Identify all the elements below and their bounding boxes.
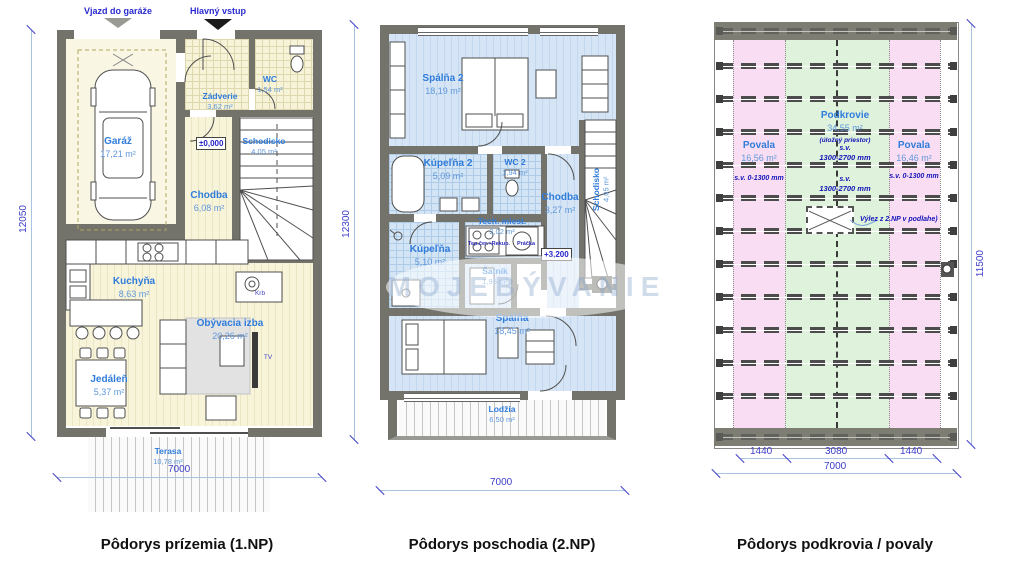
watermark: MOJEBÝVANIE [386,256,668,318]
room-name: Lodžia [489,404,516,414]
dim-height-ground: 12050 [18,205,29,233]
room-label-povala-left: Povala 16,56 m² [741,140,777,164]
room-area: 16,56 m² [741,153,777,164]
room-label-wc2: WC 2 1,94 m² [502,157,527,177]
room-label-tech: Tech. miest. 3,02 m² [478,216,527,236]
room-label-chodba2: Chodba 3,27 m² [541,192,578,216]
room-name: Tech. miest. [478,216,527,226]
tv-label: TV [264,354,272,361]
caption-second: Pôdorys poschodia (2.NP) [409,536,596,553]
room-label-garaz: Garáž 17,21 m² [100,136,136,160]
room-area: 18,45 m² [494,326,530,337]
room-label-schodisko2: Schodisko 4,05 m² [591,168,611,211]
room-name: Garáž [104,136,132,147]
caption-attic: Pôdorys podkrovia / povaly [737,536,933,553]
dim-seg3: 1440 [900,446,922,457]
room-label-podkrovie: Podkrovie 34,55 m² [821,110,869,134]
room-name: Obývacia izba [197,318,264,329]
room-area: 1,94 m² [502,168,527,177]
main-entry-arrow-icon [204,19,232,30]
room-area: 5,37 m² [90,387,127,398]
room-area: 8,63 m² [113,289,155,300]
room-name: Zádverie [203,91,238,101]
dim-height-second: 12300 [341,210,352,238]
room-name: Kúpeľňa 2 [424,158,473,169]
room-name: Jedáleň [90,374,127,385]
entry-label-main: Hlavný vstup [190,6,246,16]
dim-seg1: 1440 [750,446,772,457]
room-area: 4,05 m² [602,168,611,211]
room-label-wc: WC 1,54 m² [257,74,282,94]
room-label-lodzia: Lodžia 6,50 m² [489,404,516,424]
note-vylez: Výlez z 2.NP v podlahe) [860,216,938,223]
room-label-spalna2: Spálňa 2 18,19 m² [422,73,463,97]
floorplan-sheet: Vjazd do garáže Hlavný vstup Garáž 17,21… [0,0,1011,570]
room-area: 17,21 m² [100,149,136,160]
room-label-terasa: Terasa 10,78 m² [153,446,183,466]
room-area: 6,08 m² [190,203,227,214]
room-area: 3,02 m² [478,227,527,236]
room-area: 5,09 m² [424,171,473,182]
room-name: Kúpeľňa [410,244,451,255]
room-area: 6,50 m² [489,415,516,424]
room-name: Terasa [155,446,182,456]
dim-width-ground: 7000 [168,464,190,475]
caption-ground: Pôdorys prízemia (1.NP) [101,536,274,553]
room-label-povala-right: Povala 16,46 m² [896,140,932,164]
note-sv-center2-range: 1300-2700 mm [819,184,870,193]
room-name: Spálňa 2 [422,73,463,84]
dim-width-second: 7000 [490,477,512,488]
note-sv-center2: s.v. [839,176,850,183]
dim-width-attic: 7000 [824,461,846,472]
room-area: 3,62 m² [203,102,238,111]
room-area: 20,26 m² [197,331,264,342]
room-name: Podkrovie [821,110,869,121]
washer-label: Práčka [517,241,535,247]
room-label-kupelna2: Kúpeľňa 2 5,09 m² [424,158,473,182]
level-marker-ground: ±0,000 [196,137,226,150]
note-sv-right: s.v. 0-1300 mm [889,173,938,180]
room-area: 18,19 m² [422,86,463,97]
garage-entry-arrow-icon [104,18,132,28]
fireplace-label: Krb [255,290,265,297]
note-sv-center: s.v. [839,145,850,152]
room-name: Chodba [541,192,578,203]
room-area: 16,46 m² [896,153,932,164]
dim-height-attic: 11500 [975,250,986,277]
room-label-zadverie: Zádverie 3,62 m² [203,91,238,111]
room-area: 1,54 m² [257,85,282,94]
room-name: WC [263,74,277,84]
note-sv-left: s.v. 0-1300 mm [734,175,783,182]
room-label-schodisko: Schodisko 4,05 m² [243,136,286,156]
room-area: 4,05 m² [243,147,286,156]
room-label-obyvacia: Obývacia izba 20,26 m² [197,318,264,342]
room-area: 34,55 m² [821,123,869,134]
room-label-chodba: Chodba 6,08 m² [190,190,227,214]
room-label-kuchyna: Kuchyňa 8,63 m² [113,276,155,300]
room-name: Schodisko [243,136,286,146]
room-name: Povala [743,140,775,151]
note-sv-center-range: 1300-2700 mm [819,153,870,162]
note-ulozny-priestor: (úložný priestor) [820,137,871,144]
room-name: WC 2 [504,157,525,167]
room-name: Chodba [190,190,227,201]
room-name: Povala [898,140,930,151]
heatpump-label: Tep.čer.+Rekup. [468,241,510,247]
room-label-jedalen: Jedáleň 5,37 m² [90,374,127,398]
dim-seg2: 3080 [825,446,847,457]
room-name: Kuchyňa [113,276,155,287]
entry-label-garage: Vjazd do garáže [84,6,152,16]
room-area: 3,27 m² [541,205,578,216]
watermark-text: MOJEBÝVANIE [388,271,667,303]
room-name: Schodisko [591,168,601,211]
